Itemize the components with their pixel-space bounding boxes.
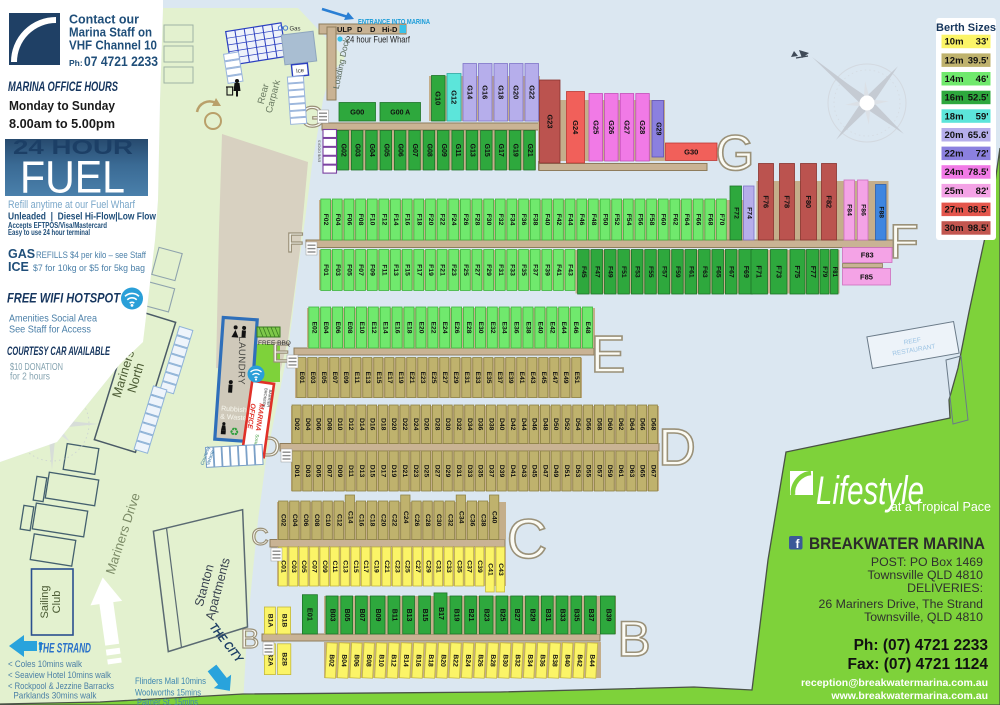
svg-text:G00: G00 [350,107,364,116]
svg-text:E17: E17 [386,371,393,383]
svg-text:BREAKWATER MARINA: BREAKWATER MARINA [809,534,985,553]
svg-text:G07: G07 [411,144,418,157]
svg-text:27m: 27m [945,205,964,216]
svg-text:F64: F64 [683,214,690,226]
svg-text:B17: B17 [437,607,444,620]
svg-text:G20: G20 [512,85,521,99]
svg-text:C30: C30 [435,514,442,527]
svg-text:E09: E09 [342,371,349,383]
svg-text:C09: C09 [321,560,328,573]
svg-text:C13: C13 [342,560,349,573]
svg-text:B04: B04 [340,654,348,667]
svg-text:78.5': 78.5' [968,167,989,178]
svg-text:ULP: ULP [337,25,352,34]
svg-text:C26: C26 [413,514,420,527]
svg-text:F18: F18 [415,214,422,226]
svg-text:D06: D06 [315,418,322,431]
svg-text:33': 33' [976,37,989,48]
svg-text:D24: D24 [412,418,419,431]
svg-text:D18: D18 [379,418,386,431]
svg-text:D64: D64 [628,418,635,431]
svg-text:F42: F42 [555,214,562,226]
svg-text:Marina Staff on: Marina Staff on [69,26,152,40]
svg-text:07 4721 2233: 07 4721 2233 [84,54,158,69]
svg-text:E30: E30 [477,321,484,333]
svg-text:C27: C27 [414,560,421,573]
svg-text:F85: F85 [860,272,873,281]
svg-text:D33: D33 [466,465,473,478]
svg-text:E34: E34 [501,321,508,333]
svg-text:12m: 12m [945,55,964,66]
svg-text:F63: F63 [701,266,708,278]
svg-text:C15: C15 [352,560,359,573]
svg-text:39.5': 39.5' [968,55,989,66]
svg-text:E35: E35 [485,371,492,383]
svg-text:F50: F50 [602,214,609,226]
svg-text:C31: C31 [435,560,442,573]
svg-text:EWB DOCKS: EWB DOCKS [318,139,322,162]
svg-text:C20: C20 [380,514,387,527]
svg-text:G21: G21 [526,144,533,157]
svg-text:F76: F76 [762,195,771,208]
svg-text:E10: E10 [358,321,365,333]
svg-text:E41: E41 [518,371,525,383]
svg-text:Contact our: Contact our [69,13,139,27]
svg-text:E29: E29 [452,371,459,383]
svg-text:VHF Channel 10: VHF Channel 10 [69,39,157,53]
svg-text:See Staff for Access: See Staff for Access [9,324,91,336]
svg-text:B21: B21 [467,609,474,622]
svg-text:E28: E28 [465,321,472,333]
svg-text:E24: E24 [441,321,448,333]
svg-text:F05: F05 [345,264,352,276]
svg-text:F25: F25 [462,264,469,276]
svg-text:46': 46' [976,74,989,85]
svg-text:F32: F32 [497,214,504,226]
svg-text:E16: E16 [394,321,401,333]
svg-text:C23: C23 [393,560,400,573]
svg-text:F57: F57 [661,266,668,278]
svg-text:B29: B29 [529,609,536,622]
svg-text:F11: F11 [380,264,387,276]
svg-text:F86: F86 [859,204,866,216]
svg-text:C03: C03 [290,560,297,573]
svg-text:Hi-D: Hi-D [382,25,398,34]
svg-text:C17: C17 [362,560,369,573]
svg-text:D22: D22 [401,418,408,431]
svg-text:D68: D68 [649,418,656,431]
svg-text:52.5': 52.5' [968,93,989,104]
svg-text:E06: E06 [334,321,341,333]
svg-text:Palmer St. 15mins: Palmer St. 15mins [137,697,198,705]
svg-text:B05: B05 [343,609,350,622]
svg-text:B16: B16 [414,654,422,667]
svg-text:F77: F77 [809,266,816,278]
svg-text:C24: C24 [402,511,409,524]
svg-text:D42: D42 [509,418,516,431]
svg-text:E37: E37 [496,371,503,383]
svg-text:E36: E36 [513,321,520,333]
svg-text:D55: D55 [585,465,592,478]
svg-text:F66: F66 [695,214,702,226]
svg-text:COURTESY CAR AVAILABLE: COURTESY CAR AVAILABLE [7,344,111,358]
svg-text:D41: D41 [509,465,516,478]
svg-text:F84: F84 [846,204,853,216]
svg-text:C06: C06 [302,514,309,527]
svg-text:C36: C36 [468,514,475,527]
svg-text:F41: F41 [555,264,562,276]
svg-text:D23: D23 [412,465,419,478]
svg-text:F23: F23 [450,264,457,276]
svg-text:$7 for 10kg or $5 for 5kg bag: $7 for 10kg or $5 for 5kg bag [33,263,145,274]
svg-text:F72: F72 [732,207,739,219]
svg-text:G30: G30 [684,147,698,156]
svg-text:F24: F24 [450,214,457,226]
svg-text:FREE WIFI HOTSPOT: FREE WIFI HOTSPOT [7,290,121,306]
svg-text:10m: 10m [945,37,964,48]
svg-text:D32: D32 [455,418,462,431]
svg-text:B38: B38 [551,654,559,667]
svg-text:F43: F43 [567,264,574,276]
svg-text:G11: G11 [454,144,461,157]
svg-text:G15: G15 [483,144,490,157]
svg-text:G16: G16 [481,85,490,99]
svg-text:Flinders Mall 10mins: Flinders Mall 10mins [135,676,206,687]
svg-text:C04: C04 [291,514,298,527]
svg-text:G29: G29 [654,122,661,135]
svg-text:D21: D21 [401,465,408,478]
svg-text:D36: D36 [477,418,484,431]
svg-text:D54: D54 [574,418,581,431]
svg-text:E07: E07 [331,371,338,383]
svg-text:F35: F35 [520,264,527,276]
svg-text:G19: G19 [512,144,519,157]
svg-text:for 2 hours: for 2 hours [10,372,50,383]
svg-text:F03: F03 [334,264,341,276]
svg-text:F10: F10 [369,214,376,226]
svg-text:E13: E13 [364,371,371,383]
svg-text:F34: F34 [508,214,515,226]
svg-text:D10: D10 [336,418,343,431]
svg-text:C08: C08 [313,514,320,527]
svg-text:D25: D25 [423,465,430,478]
svg-text:D35: D35 [477,465,484,478]
svg-text:D52: D52 [563,418,570,431]
svg-text:B1A: B1A [266,614,273,628]
svg-text:F81: F81 [831,267,837,278]
svg-text:D67: D67 [649,465,656,478]
svg-text:F45: F45 [580,266,587,278]
svg-text:F07: F07 [357,264,364,276]
svg-text:D49: D49 [552,465,559,478]
svg-text:E23: E23 [419,371,426,383]
svg-text:Ice: Ice [296,68,305,75]
svg-text:F09: F09 [369,264,376,276]
svg-text:C16: C16 [357,514,364,527]
svg-text:D05: D05 [315,465,322,478]
svg-text:Fax: (07) 4721 1124: Fax: (07) 4721 1124 [848,656,989,673]
svg-text:B27: B27 [513,609,520,622]
svg-text:F08: F08 [357,214,364,226]
svg-text:B08: B08 [364,654,372,667]
svg-text:C32: C32 [446,514,453,527]
svg-text:F28: F28 [474,214,481,226]
svg-text:Monday to Sunday: Monday to Sunday [9,98,116,113]
svg-text:F62: F62 [671,214,678,226]
svg-text:E05: E05 [320,371,327,383]
svg-text:C02: C02 [280,514,287,527]
svg-text:B32: B32 [513,654,521,667]
svg-text:C29: C29 [424,560,431,573]
svg-text:E21: E21 [408,371,415,383]
svg-text:82': 82' [976,186,989,197]
svg-text:G00 A: G00 A [390,109,410,116]
svg-text:♻: ♻ [229,426,240,439]
svg-text:C07: C07 [311,560,318,573]
svg-text:E27: E27 [441,371,448,383]
svg-text:E26: E26 [453,321,460,333]
svg-text:F58: F58 [648,214,655,226]
svg-text:Parklands 30mins walk: Parklands 30mins walk [13,691,96,702]
svg-text:F61: F61 [687,266,694,278]
svg-text:Ph: (07) 4721 2233: Ph: (07) 4721 2233 [854,637,989,654]
svg-text:F17: F17 [415,264,422,276]
svg-text:F38: F38 [532,214,539,226]
svg-text:D45: D45 [531,465,538,478]
svg-text:B24: B24 [464,654,472,667]
svg-text:D13: D13 [358,465,365,478]
svg-text:G24: G24 [571,120,580,135]
svg-text:F80: F80 [804,195,813,208]
svg-text:24m: 24m [945,167,964,178]
svg-text:G13: G13 [469,144,476,157]
svg-text:D38: D38 [487,418,494,431]
svg-text:G: G [716,125,755,181]
svg-text:D50: D50 [552,418,559,431]
svg-text:25m: 25m [945,186,964,197]
svg-text:F20: F20 [427,214,434,226]
svg-text:F60: F60 [660,214,667,226]
svg-text:E20: E20 [417,321,424,333]
svg-text:F47: F47 [593,266,600,278]
svg-text:D53: D53 [574,465,581,478]
svg-text:C41: C41 [486,563,493,576]
svg-text:C18: C18 [369,514,376,527]
svg-text:C01: C01 [279,560,286,573]
svg-text:E14: E14 [382,321,389,333]
svg-text:D63: D63 [628,465,635,478]
svg-text:D28: D28 [433,418,440,431]
svg-text:E18: E18 [406,321,413,333]
svg-text:G18: G18 [496,85,505,99]
svg-text:F78: F78 [783,195,792,208]
svg-text:G10: G10 [434,91,443,105]
svg-text:C14: C14 [346,511,353,524]
svg-text:59': 59' [976,111,989,122]
svg-text:D65: D65 [639,465,646,478]
svg-text:D: D [370,25,376,34]
svg-text:C19: C19 [373,560,380,573]
svg-text:24 hour Fuel Wharf: 24 hour Fuel Wharf [346,35,410,45]
svg-text:D09: D09 [336,465,343,478]
svg-text:F46: F46 [578,214,585,226]
svg-text:30m: 30m [945,223,964,234]
svg-text:G02: G02 [339,144,346,157]
svg-text:8.00am to 5.00pm: 8.00am to 5.00pm [9,116,115,131]
svg-text:C10: C10 [324,514,331,527]
svg-text:D56: D56 [585,418,592,431]
svg-text:F06: F06 [345,214,352,226]
svg-text:F29: F29 [485,264,492,276]
svg-text:F82: F82 [825,195,834,208]
svg-text:B06: B06 [352,654,360,667]
svg-text:D27: D27 [433,465,440,478]
svg-text:F16: F16 [404,214,411,226]
svg-text:G22: G22 [527,85,536,99]
svg-text:72': 72' [976,149,989,160]
svg-text:C12: C12 [335,514,342,527]
svg-text:F54: F54 [625,214,632,226]
svg-text:F83: F83 [861,251,874,260]
svg-text:C43: C43 [497,563,504,576]
svg-text:E08: E08 [346,321,353,333]
svg-text:G25: G25 [591,120,600,134]
svg-text:D12: D12 [347,418,354,431]
svg-text:F52: F52 [613,214,620,226]
svg-text:D44: D44 [520,418,527,431]
svg-text:D61: D61 [617,465,624,478]
svg-text:E11: E11 [353,372,360,384]
svg-text:F02: F02 [322,214,329,226]
svg-text:B2B: B2B [281,652,288,666]
svg-text:D15: D15 [369,465,376,478]
svg-text:B: B [617,611,650,667]
svg-text:F49: F49 [607,266,614,278]
svg-text:C39: C39 [476,560,483,573]
svg-text:B12: B12 [389,654,397,667]
svg-text:E32: E32 [489,321,496,333]
svg-text:LAUNDRY: LAUNDRY [235,336,247,385]
svg-text:D17: D17 [379,465,386,478]
svg-text:E31: E31 [463,371,470,383]
svg-text:D60: D60 [606,418,613,431]
svg-text:E40: E40 [536,321,543,333]
svg-text:F88: F88 [877,206,884,218]
svg-text:F19: F19 [427,264,434,276]
svg-text:B34: B34 [526,654,534,667]
svg-text:B40: B40 [563,654,571,667]
svg-text:E39: E39 [507,371,514,383]
svg-text:F22: F22 [439,214,446,226]
svg-text:E44: E44 [560,321,567,333]
svg-text:B44: B44 [588,654,596,667]
svg-text:C33: C33 [445,560,452,573]
svg-text:D29: D29 [444,465,451,478]
svg-text:F48: F48 [590,214,597,226]
svg-text:18m: 18m [945,111,964,122]
svg-text:B42: B42 [575,654,583,667]
svg-text:D31: D31 [455,465,462,478]
svg-text:F59: F59 [674,266,681,278]
svg-text:G17: G17 [497,144,504,157]
svg-text:F14: F14 [392,214,399,226]
svg-text:E12: E12 [370,321,377,333]
svg-text:B31: B31 [544,609,551,622]
svg-text:D57: D57 [595,465,602,478]
svg-text:D: D [357,25,363,34]
svg-text:F15: F15 [404,264,411,276]
svg-text:B28: B28 [489,654,497,667]
svg-text:REFILLS $4 per kilo – see Staf: REFILLS $4 per kilo – see Staff [36,250,146,261]
svg-text:D59: D59 [606,465,613,478]
svg-text:B30: B30 [501,654,509,667]
svg-text:B22: B22 [451,654,459,667]
svg-text:F71: F71 [755,265,764,278]
svg-text:G03: G03 [354,144,361,157]
svg-text:Rubbish& Waste: Rubbish& Waste [220,406,247,423]
svg-text:D30: D30 [444,418,451,431]
svg-text:B11: B11 [390,609,397,622]
svg-text:Berth Sizes: Berth Sizes [936,22,996,34]
svg-text:B33: B33 [559,609,566,622]
svg-text:C28: C28 [424,514,431,527]
svg-text:E45: E45 [540,371,547,383]
svg-text:E03: E03 [309,371,316,383]
svg-text:65.6': 65.6' [968,130,989,141]
svg-text:22m: 22m [945,149,964,160]
svg-text:E04: E04 [322,321,329,333]
svg-text:E46: E46 [572,321,579,333]
svg-text:D47: D47 [541,465,548,478]
svg-text:F37: F37 [532,264,539,276]
svg-text:F56: F56 [636,214,643,226]
svg-text:E22: E22 [429,321,436,333]
svg-text:B19: B19 [452,609,459,622]
svg-text:ICE: ICE [8,260,29,274]
svg-text:D39: D39 [498,465,505,478]
svg-text:E38: E38 [525,321,532,333]
svg-text:F: F [286,227,303,258]
svg-text:at a Tropical Pace: at a Tropical Pace [891,500,991,514]
svg-text:E01: E01 [305,608,314,621]
svg-text:Townsville, QLD 4810: Townsville, QLD 4810 [864,610,983,624]
svg-text:E42: E42 [548,321,555,333]
svg-text:F13: F13 [392,264,399,276]
svg-text:F30: F30 [485,214,492,226]
svg-text:B25: B25 [498,609,505,622]
svg-text:B23: B23 [483,609,490,622]
svg-text:D26: D26 [423,418,430,431]
svg-text:ENTRANCE INTO MARINA: ENTRANCE INTO MARINA [358,17,430,26]
svg-text:D04: D04 [304,418,311,431]
svg-text:C: C [251,524,268,551]
svg-text:E: E [591,326,626,384]
svg-text:F: F [889,216,918,269]
svg-text:E49: E49 [562,371,569,383]
svg-text:C22: C22 [391,514,398,527]
svg-text:D40: D40 [498,418,505,431]
svg-text:D66: D66 [639,418,646,431]
svg-text:F74: F74 [745,207,752,219]
svg-text:MARINA OFFICE HOURS: MARINA OFFICE HOURS [8,79,118,94]
svg-text:16m: 16m [945,93,964,104]
svg-text:B26: B26 [476,654,484,667]
svg-text:G12: G12 [450,90,459,104]
svg-text:D14: D14 [358,418,365,431]
svg-text:D03: D03 [304,465,311,478]
svg-text:D19: D19 [390,465,397,478]
svg-text:reception@breakwatermarina.com: reception@breakwatermarina.com.au [801,677,988,689]
